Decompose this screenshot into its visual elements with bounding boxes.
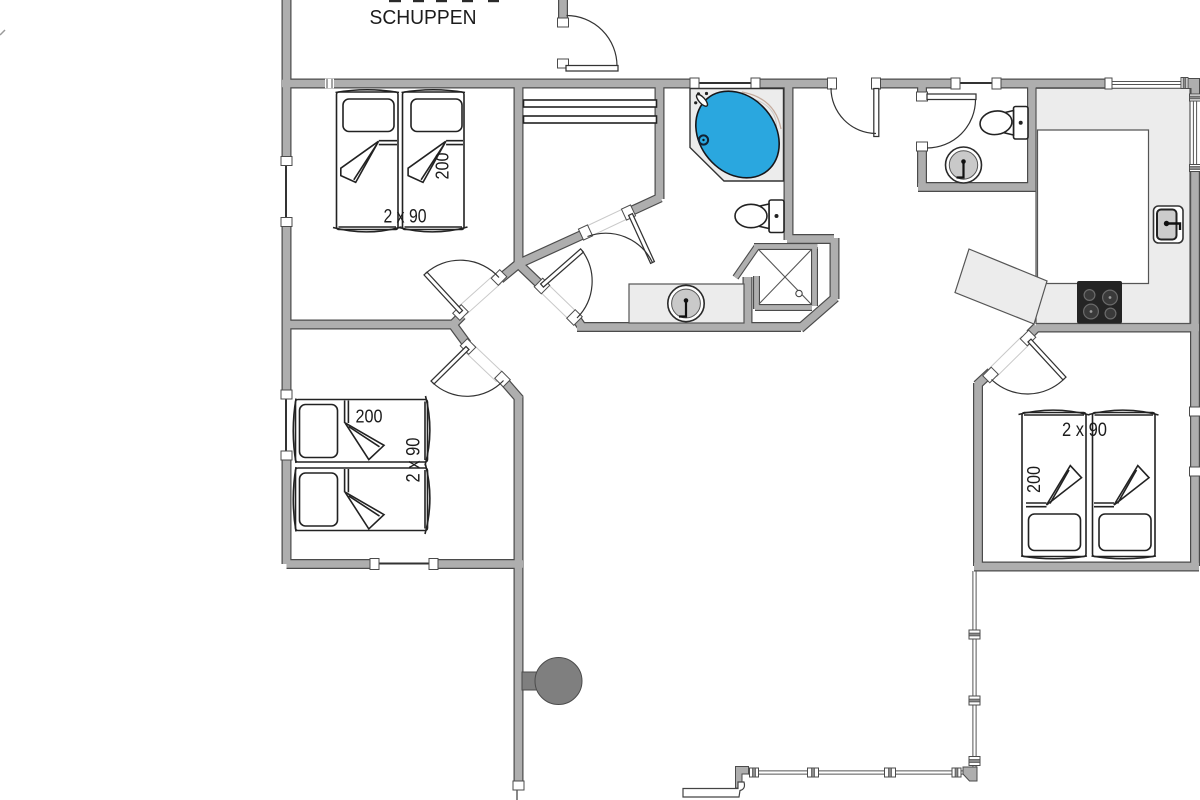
svg-text:2 x 90: 2 x 90 [403,437,425,482]
svg-text:2 x 90: 2 x 90 [1062,419,1107,441]
svg-text:200: 200 [356,407,383,427]
svg-text:200: 200 [432,153,452,180]
svg-text:SCHUPPEN: SCHUPPEN [370,6,477,29]
svg-text:200: 200 [1024,466,1044,493]
svg-text:2 x 90: 2 x 90 [384,206,427,228]
